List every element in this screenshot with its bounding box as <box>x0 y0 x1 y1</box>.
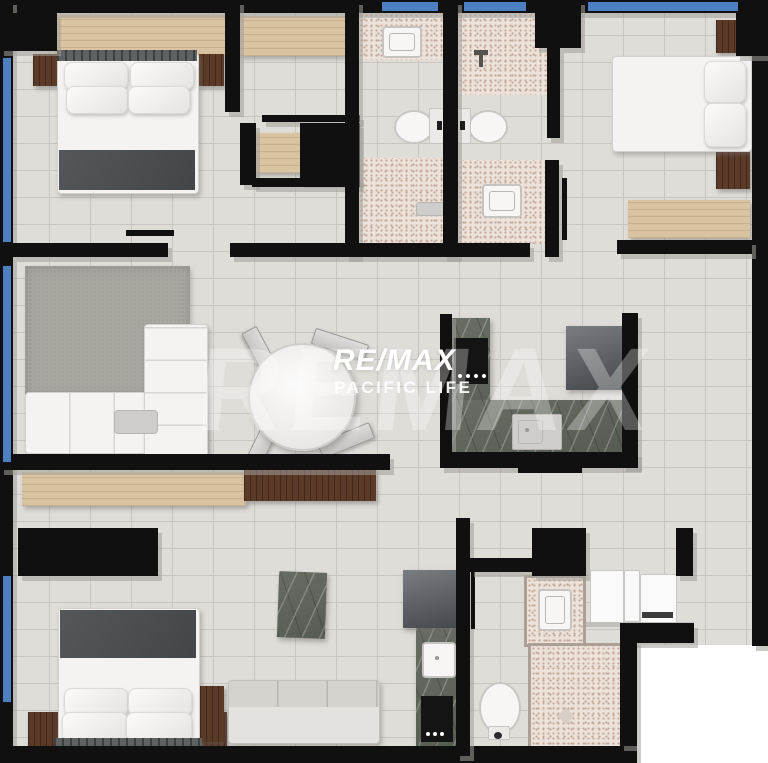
wall-bathroom3-east <box>620 640 637 746</box>
wall-bedroom3-closet-block <box>18 528 158 576</box>
window <box>3 576 11 702</box>
side-cabinet <box>200 686 224 742</box>
stove-knobs <box>426 732 430 736</box>
wall-corner-block <box>736 0 768 56</box>
wall-bathrooms-west <box>345 0 359 257</box>
bathroom3-shower <box>528 643 626 750</box>
laundry-cabinet <box>624 570 640 622</box>
flush-button <box>437 121 442 130</box>
door-leaf-bathroom3 <box>471 565 475 629</box>
wall-bottom <box>0 746 637 763</box>
bathroom1-sink <box>382 26 422 58</box>
bathroom1-toilet <box>394 110 434 144</box>
nightstand <box>716 152 750 189</box>
shower-fixture <box>416 202 444 216</box>
window <box>3 58 11 242</box>
closet-shelf-top <box>240 16 345 56</box>
toilet-flush-dot <box>494 732 502 739</box>
bathroom2-toilet <box>468 110 508 144</box>
wall-studio-bath <box>456 518 470 756</box>
sink-bowl <box>545 596 565 624</box>
wall-bathroom3-top <box>470 558 534 572</box>
wall-bathroom-divider <box>443 0 458 257</box>
wall-bedroom2-west-a <box>547 48 560 138</box>
pillow <box>128 86 190 114</box>
wall-laundry-stub <box>676 528 693 576</box>
sink-bowl <box>389 33 415 51</box>
window <box>382 2 438 11</box>
wall-right <box>752 0 768 646</box>
wall-wardrobe-bottom <box>252 178 360 187</box>
wall-bedroom1-corner <box>0 13 57 51</box>
dryer-control-strip <box>642 612 673 618</box>
door-threshold-kitchen <box>518 466 582 473</box>
studio-sofa <box>228 680 380 744</box>
pillow <box>66 86 128 114</box>
sink-drain <box>435 656 439 660</box>
wall-mid-horizontal-b <box>230 243 530 257</box>
bathroom3-sink <box>538 589 572 631</box>
wardrobe-shelf <box>252 133 302 173</box>
flush-button <box>460 121 465 130</box>
kitchenette-sink <box>422 642 456 678</box>
shower-arm <box>479 55 483 67</box>
bed-3-blanket <box>60 610 196 658</box>
wall-wardrobe-left <box>240 123 256 185</box>
pillow <box>704 61 746 103</box>
window <box>464 2 526 11</box>
bedroom2-desk <box>628 200 750 238</box>
bedroom1-headwall-wardrobe <box>55 15 237 55</box>
sofa-cushion-lines <box>229 681 379 707</box>
bed-1-headboard <box>57 50 197 61</box>
bed-1-blanket <box>59 150 195 190</box>
nightstand <box>197 54 224 86</box>
nightstand <box>33 54 60 86</box>
console-dark-wood <box>244 469 376 501</box>
marble-panel <box>277 571 327 639</box>
sofa-tray <box>114 410 158 434</box>
pillow <box>704 103 746 147</box>
door-leaf-bedroom2 <box>562 178 567 240</box>
watermark-tagline: PACIFIC LIFE <box>334 378 472 398</box>
bathroom2-shower-tile <box>458 13 547 95</box>
wall-bedroom2-block <box>535 0 581 48</box>
kitchenette-refrigerator <box>403 570 457 628</box>
wall-mid-horizontal-c <box>617 240 752 254</box>
floor-plan: REMAX RE/MAX PACIFIC LIFE <box>0 0 768 763</box>
wall-bedroom2-west-b <box>545 160 559 257</box>
wall-closet-left <box>225 0 240 112</box>
wall-mid-horizontal-a <box>13 243 168 257</box>
exterior-void <box>637 645 768 763</box>
wall-vanity-block <box>532 528 586 576</box>
window <box>588 2 738 11</box>
door-leaf-bedroom1 <box>126 230 174 236</box>
window <box>3 266 11 462</box>
console-light-wood <box>22 472 246 506</box>
washer <box>590 570 624 625</box>
sink-bowl <box>489 191 515 211</box>
bathroom2-sink <box>482 184 522 218</box>
watermark-brand: RE/MAX <box>333 344 456 378</box>
